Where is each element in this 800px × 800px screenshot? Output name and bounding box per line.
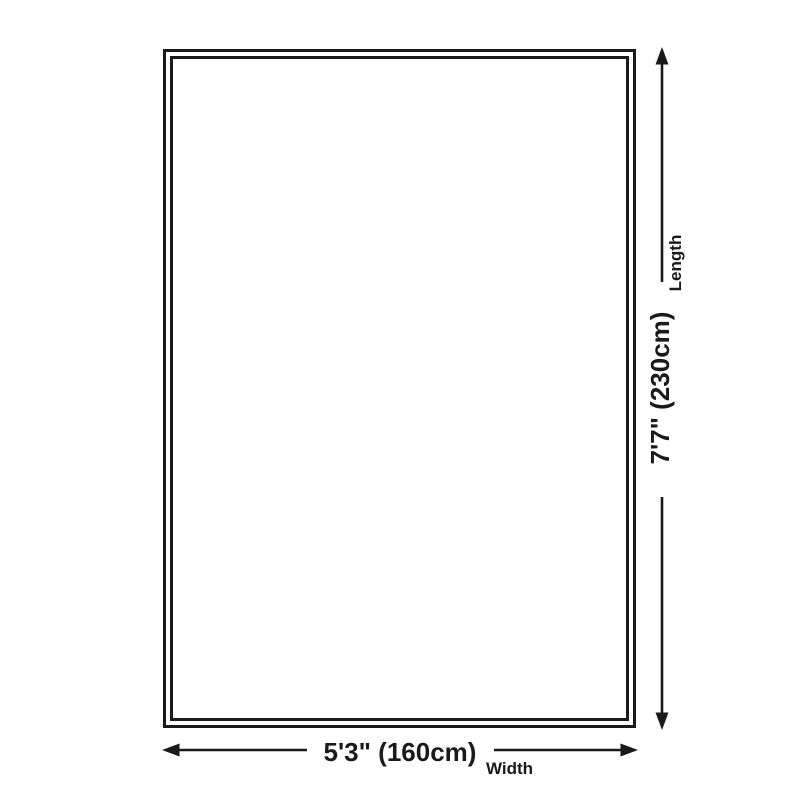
arrowhead-right-icon [621,744,639,757]
width-label: Width [486,759,533,779]
arrowhead-down-icon [656,713,669,731]
dimension-diagram: 7'7" (230cm) Length 5'3" (160cm) Width [0,0,800,800]
length-label: Length [666,223,686,303]
length-value: 7'7" (230cm) [642,288,678,488]
arrowhead-up-icon [656,47,669,65]
dimension-arrows [0,0,800,800]
width-value: 5'3" (160cm) [300,734,500,770]
arrowhead-left-icon [162,744,180,757]
